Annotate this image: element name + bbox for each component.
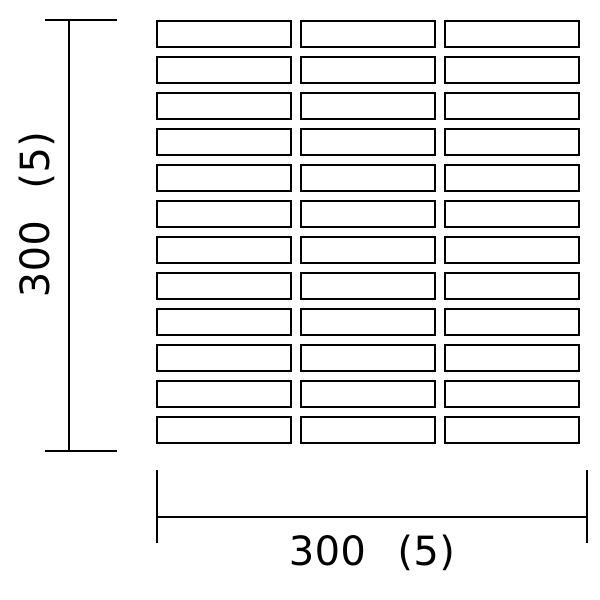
tile [444, 272, 580, 300]
tile [300, 56, 436, 84]
tile-grid [156, 20, 580, 444]
tile [300, 308, 436, 336]
tile [156, 380, 292, 408]
tile [300, 380, 436, 408]
horizontal-dimension-tick-right [586, 470, 588, 543]
vertical-dimension-tick-bottom [45, 450, 117, 452]
tile [444, 164, 580, 192]
tile [156, 272, 292, 300]
tile [444, 344, 580, 372]
tile [156, 92, 292, 120]
tile [300, 344, 436, 372]
tile [444, 20, 580, 48]
tile [156, 236, 292, 264]
tile [156, 344, 292, 372]
tile [300, 200, 436, 228]
tile [156, 308, 292, 336]
vertical-dimension-label: 300 (5) [16, 131, 56, 298]
vertical-dimension-tick-top [45, 19, 117, 21]
dimension-drawing: 300 (5) 300 (5) [0, 0, 600, 600]
tile [156, 200, 292, 228]
tile [300, 164, 436, 192]
tile [156, 20, 292, 48]
tile [156, 56, 292, 84]
tile [156, 416, 292, 444]
tile [300, 416, 436, 444]
tile [300, 20, 436, 48]
tile [444, 380, 580, 408]
tile [444, 236, 580, 264]
tile [444, 308, 580, 336]
tile [444, 128, 580, 156]
horizontal-dimension-line [157, 516, 588, 518]
tile [444, 92, 580, 120]
vertical-dimension-line [68, 20, 70, 451]
tile [300, 128, 436, 156]
tile [156, 128, 292, 156]
tile [156, 164, 292, 192]
horizontal-dimension-tick-left [156, 470, 158, 543]
tile [300, 92, 436, 120]
tile [300, 236, 436, 264]
tile [444, 56, 580, 84]
tile [444, 200, 580, 228]
horizontal-dimension-label: 300 (5) [289, 532, 456, 572]
tile [300, 272, 436, 300]
tile [444, 416, 580, 444]
